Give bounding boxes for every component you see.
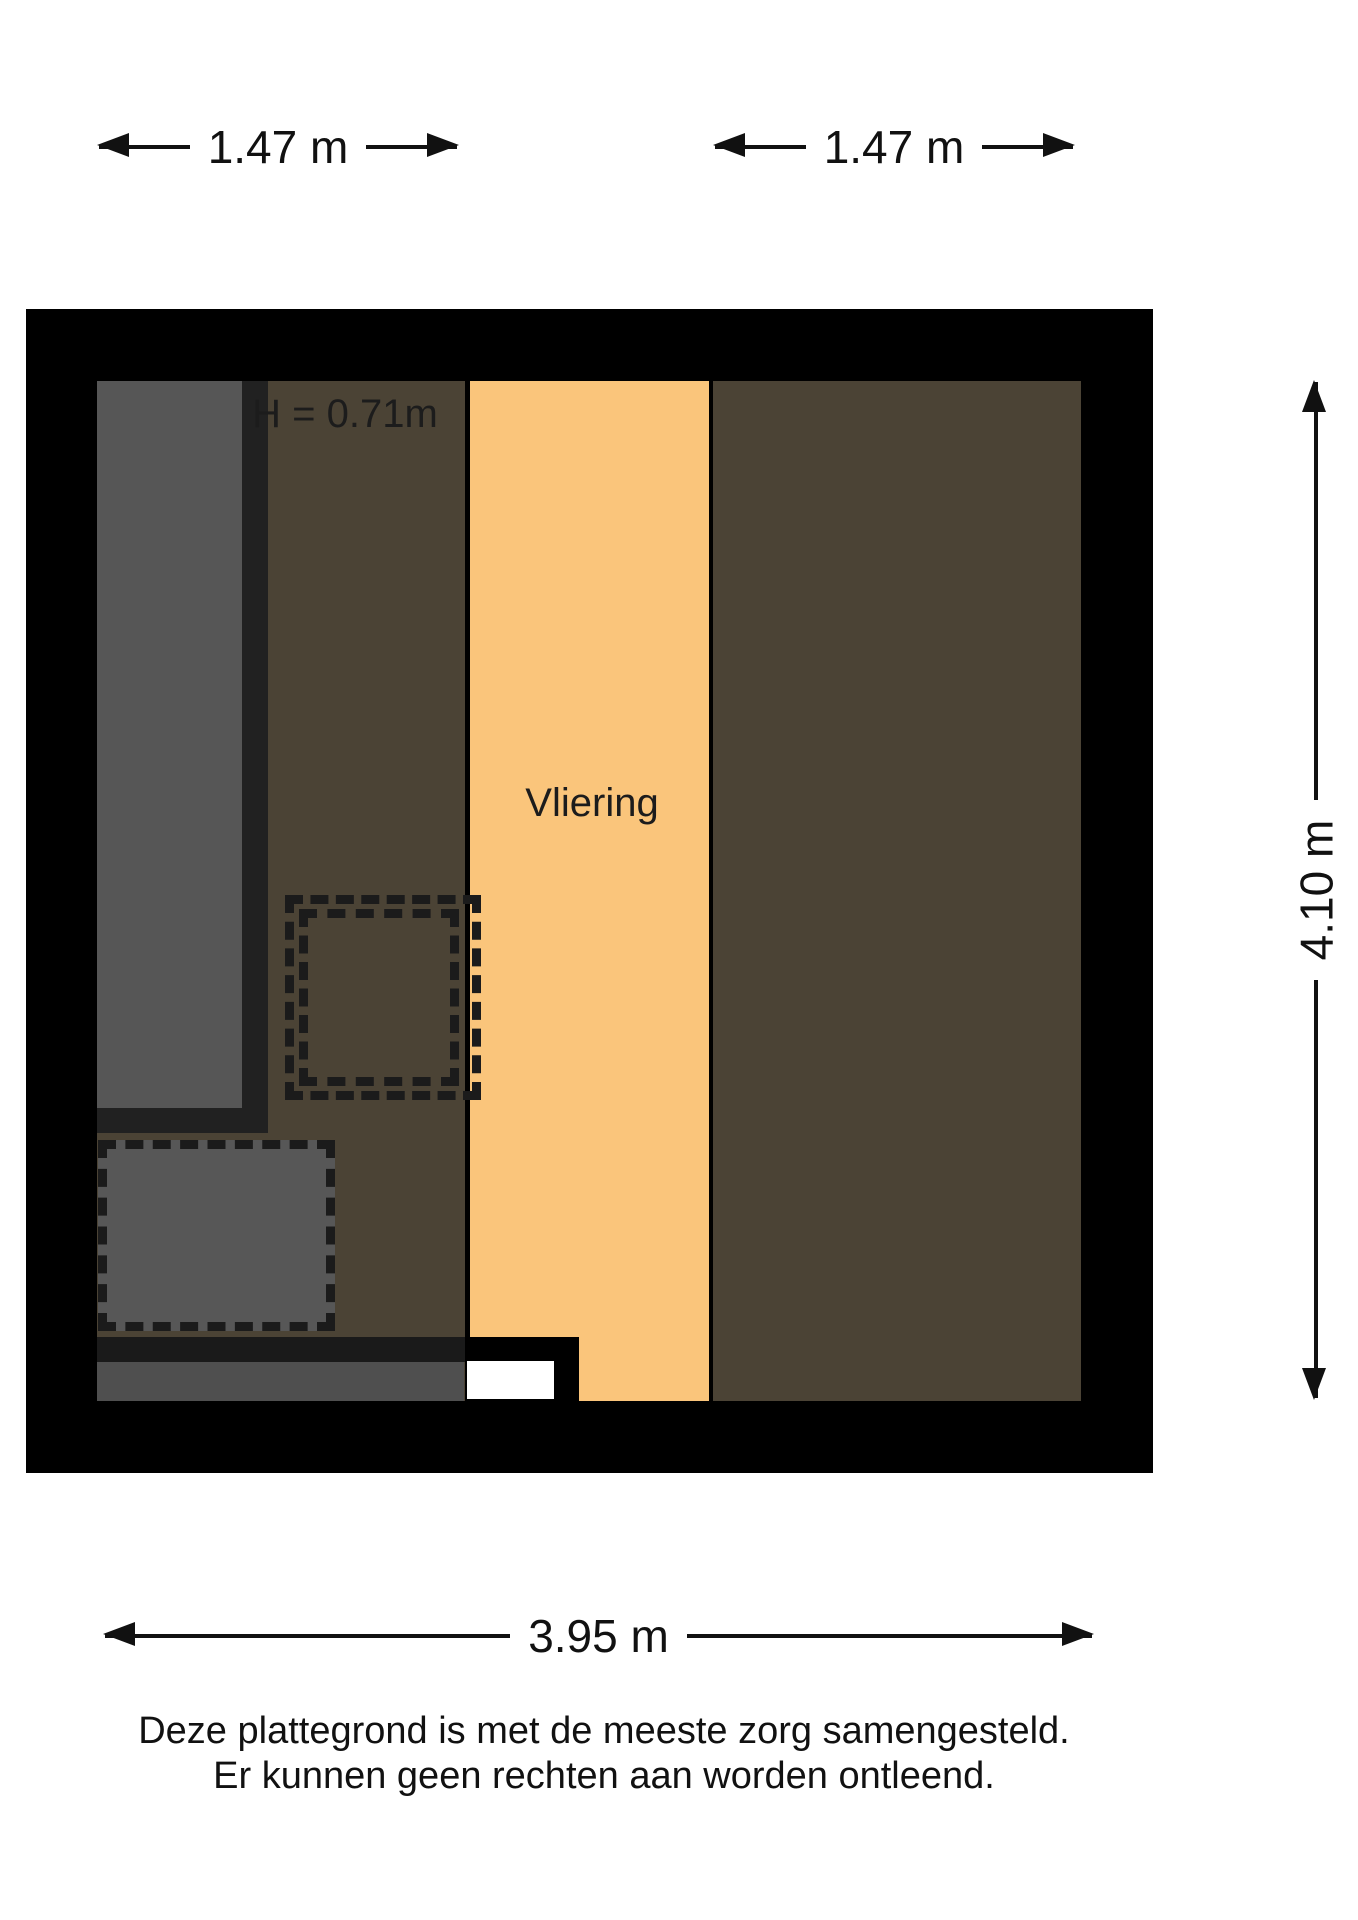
arrow-right-icon: [366, 145, 457, 149]
dimension-top-right-label: 1.47 m: [806, 120, 983, 174]
room-name-label: Vliering: [492, 782, 692, 824]
dimension-top-left-label: 1.47 m: [190, 120, 367, 174]
dimension-bottom-label: 3.95 m: [510, 1609, 687, 1663]
disclaimer-line-2: Er kunnen geen rechten aan worden ontlee…: [104, 1754, 1104, 1799]
ceiling-height-label: H = 0.71m: [245, 393, 445, 435]
stairwell-opening: [467, 1361, 554, 1399]
arrow-down-icon: [1314, 980, 1318, 1398]
stair-opening-dashed: [98, 1140, 335, 1331]
arrow-left-icon: [715, 145, 806, 149]
hatch-opening-dashed-inner: [299, 909, 459, 1086]
arrow-right-icon: [687, 1634, 1092, 1638]
vliering-room-area: [470, 381, 709, 1401]
floorplan-page: 1.47 m 1.47 m H = 0.71m Vliering: [0, 0, 1358, 1920]
arrow-left-icon: [105, 1634, 510, 1638]
dimension-top-right: 1.47 m: [715, 124, 1073, 170]
floorplan: H = 0.71m Vliering: [26, 309, 1153, 1473]
disclaimer-line-1: Deze plattegrond is met de meeste zorg s…: [104, 1709, 1104, 1754]
dimension-bottom: 3.95 m: [105, 1613, 1092, 1659]
dimension-top-left: 1.47 m: [99, 124, 457, 170]
floorplan-interior: H = 0.71m Vliering: [97, 381, 1081, 1401]
room-divider-right: [709, 381, 713, 1401]
arrow-right-icon: [982, 145, 1073, 149]
disclaimer: Deze plattegrond is met de meeste zorg s…: [104, 1709, 1104, 1799]
dimension-right-label: 4.10 m: [1289, 820, 1343, 961]
arrow-up-icon: [1314, 382, 1318, 800]
lower-edge-gray-band: [97, 1362, 464, 1401]
arrow-left-icon: [99, 145, 190, 149]
void-area: [97, 381, 242, 1108]
lower-edge-dark-band: [97, 1337, 465, 1362]
dimension-right: 4.10 m: [1293, 382, 1339, 1398]
